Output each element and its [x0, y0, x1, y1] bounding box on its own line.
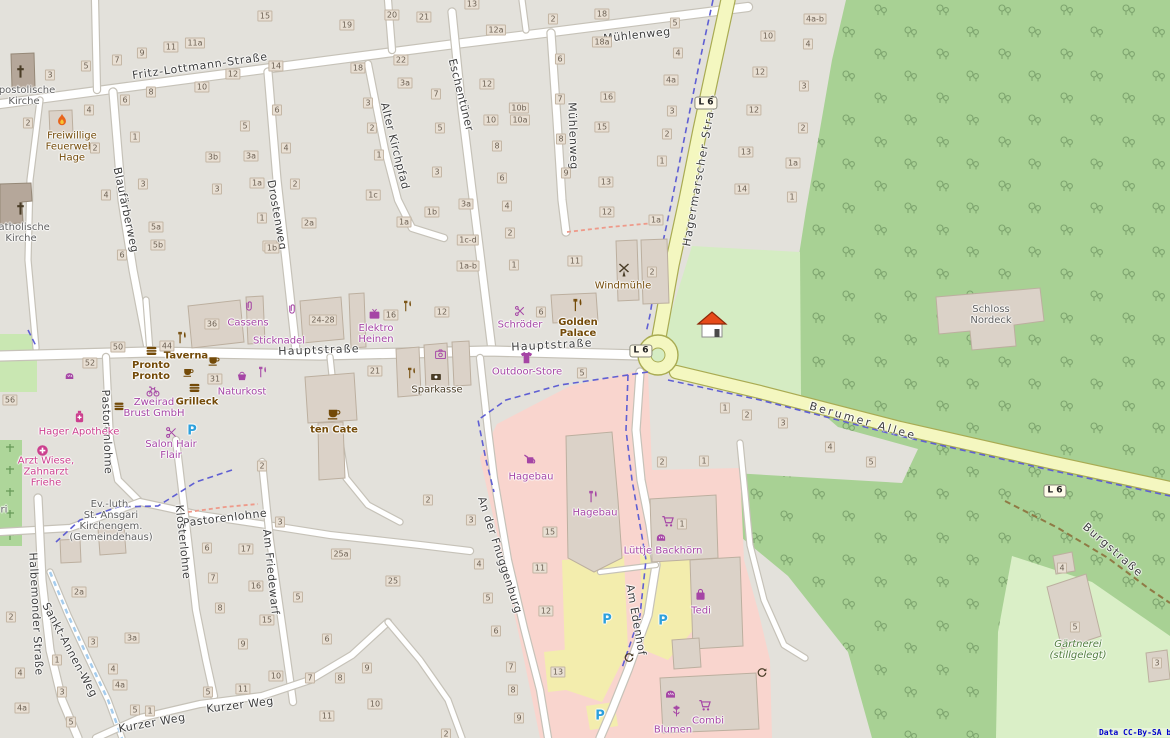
footpath-windmuehle	[567, 223, 654, 232]
building-combi-nebengebaeude	[672, 638, 701, 669]
map-canvas[interactable]: Fritz-Lottmann-StraßeMühlenwegMühlenwegE…	[0, 0, 1170, 738]
road-top-1	[95, 0, 97, 90]
road-drostenweg	[268, 72, 296, 350]
roundabout-island	[651, 348, 665, 362]
building-hagebau-halle	[566, 432, 622, 572]
building-sparkasse-2	[424, 343, 449, 391]
road-casing-kurzer-weg-2	[388, 622, 462, 738]
map-tiles	[0, 0, 1170, 738]
road-kurzer-weg	[96, 622, 388, 738]
building-gaertnerei-2	[1053, 552, 1075, 574]
building-tedi-halle	[690, 557, 743, 649]
building-gemeindehaus-2	[98, 526, 126, 555]
building-haus-24-28	[300, 297, 344, 343]
road-am-friedewarf	[262, 462, 293, 702]
road-top-2	[388, 0, 392, 50]
building-sparkasse-1	[396, 347, 421, 397]
road-hauptstrasse	[0, 351, 640, 356]
building-feuerwehr	[49, 110, 73, 135]
building-haus-16	[349, 293, 366, 348]
building-haus-2-windmuehle	[641, 239, 669, 304]
building-ten-cate-1	[305, 373, 357, 423]
building-sparkasse-3	[452, 341, 471, 386]
building-gemeindehaus-1	[60, 539, 81, 563]
road-blaufaerberweg	[113, 92, 148, 348]
building-luettje-backhoern-halle	[650, 495, 718, 562]
building-haus-36	[188, 300, 244, 348]
building-windmuehle-haus	[616, 240, 639, 301]
map-attribution: Data CC-By-SA by	[1097, 728, 1170, 737]
building-neuapostolische-kirche	[11, 53, 35, 88]
road-eschentuener	[452, 12, 492, 350]
building-golden-palace-haus	[551, 293, 598, 323]
building-combi-halle	[660, 673, 759, 733]
footpath-pastorenlohne	[188, 504, 258, 512]
area-parking-d	[544, 648, 584, 692]
area-park	[0, 334, 37, 392]
building-cassens-haus	[246, 296, 265, 344]
road-alter-kirchpfad	[368, 64, 444, 238]
building-gaertnerei-3	[1146, 650, 1170, 682]
building-ten-cate-2	[318, 422, 345, 480]
